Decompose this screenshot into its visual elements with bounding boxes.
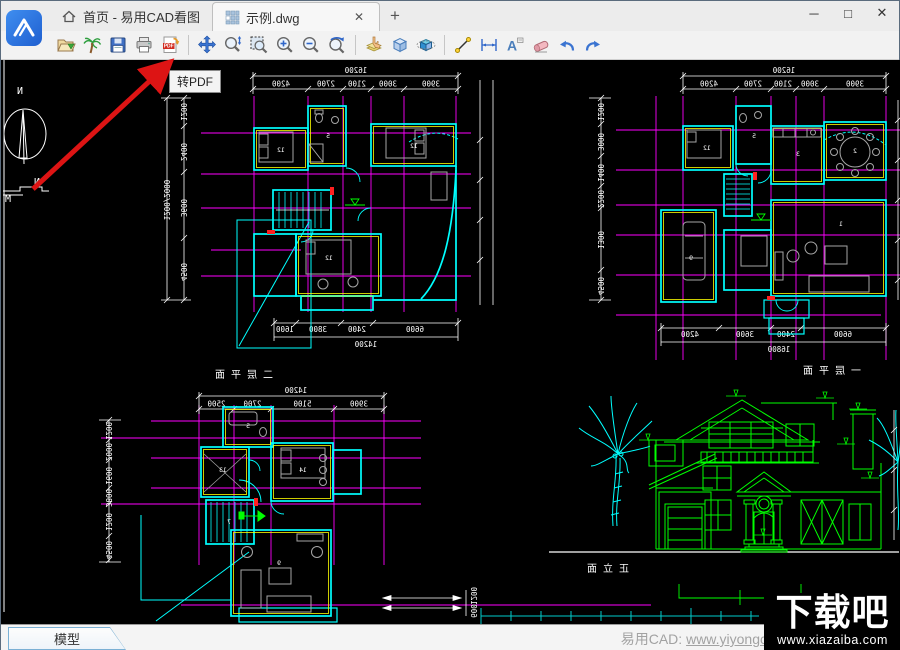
- svg-text:1200/2000: 1200/2000: [162, 179, 171, 220]
- svg-text:2400: 2400: [179, 142, 188, 161]
- cad-drawing: N N M: [1, 60, 900, 624]
- svg-text:2200: 2200: [596, 189, 605, 208]
- floor-plan-3: 14200 2500 2700 5100 3900 1200 2000 1600…: [99, 386, 651, 622]
- undo-icon: [557, 35, 577, 55]
- svg-text:4200: 4200: [699, 80, 718, 89]
- text-annotate-button[interactable]: A: [502, 33, 528, 58]
- tab-close-icon[interactable]: ✕: [351, 10, 367, 24]
- svg-text:1300: 1300: [596, 230, 605, 249]
- promo-prefix: 易用CAD:: [621, 631, 686, 647]
- print-button[interactable]: [131, 33, 157, 58]
- svg-text:4200: 4200: [271, 80, 290, 89]
- toolbar-separator: [188, 35, 189, 55]
- pdf-tooltip: 转PDF: [169, 70, 221, 93]
- pdf-icon-label: PDF: [164, 44, 174, 50]
- pan-icon: [197, 35, 217, 55]
- svg-text:3000: 3000: [378, 80, 397, 89]
- watermark-url: www.xiazaiba.com: [764, 633, 900, 647]
- svg-text:4500: 4500: [104, 540, 113, 559]
- svg-text:5: 5: [326, 132, 330, 140]
- print-icon: [134, 35, 154, 55]
- svg-text:14: 14: [299, 466, 307, 474]
- svg-text:2400: 2400: [347, 325, 366, 334]
- model-tab-label: 模型: [54, 629, 80, 648]
- svg-text:3: 3: [796, 150, 800, 158]
- dimension-button[interactable]: [476, 33, 502, 58]
- svg-text:14200: 14200: [354, 340, 377, 349]
- toolbar-separator: [444, 35, 445, 55]
- cad-canvas[interactable]: N N M: [1, 60, 900, 624]
- plan-1f-label: 一层平面: [797, 365, 861, 377]
- app-window: 首页 - 易用CAD看图 示例.dwg ✕ + ─ □ ✕: [0, 0, 900, 650]
- window-controls: ─ □ ✕: [805, 5, 891, 21]
- orbit-3d-button[interactable]: [413, 33, 439, 58]
- zoom-window-button[interactable]: [246, 33, 272, 58]
- layer-pick-button[interactable]: [361, 33, 387, 58]
- svg-text:16200: 16200: [344, 66, 367, 75]
- svg-text:5: 5: [752, 132, 756, 140]
- app-logo: [6, 10, 42, 46]
- svg-text:16800: 16800: [767, 345, 790, 354]
- svg-text:1600: 1600: [275, 325, 294, 334]
- zoom-dynamic-icon: [223, 35, 243, 55]
- front-elevation: 正立面: [481, 390, 900, 624]
- svg-text:13: 13: [219, 466, 227, 474]
- logo-icon: [11, 15, 37, 41]
- svg-text:1400: 1400: [596, 163, 605, 182]
- svg-text:4500: 4500: [179, 262, 188, 281]
- toolbar-separator: [355, 35, 356, 55]
- save-button[interactable]: [105, 33, 131, 58]
- north-compass: N: [4, 86, 46, 164]
- svg-text:3600: 3600: [179, 198, 188, 217]
- dimension-icon: [479, 35, 499, 55]
- floor-plan-2f: 16200 4200 2700 2100 3000 3900 1200 2400…: [161, 66, 493, 381]
- zoom-dynamic-button[interactable]: [220, 33, 246, 58]
- svg-text:3900: 3900: [349, 400, 368, 409]
- tab-bar: 首页 - 易用CAD看图 示例.dwg ✕ + ─ □ ✕: [1, 1, 899, 31]
- svg-text:2700: 2700: [743, 80, 762, 89]
- svg-text:14200: 14200: [284, 386, 307, 395]
- redo-button[interactable]: [580, 33, 606, 58]
- svg-text:3900: 3900: [845, 80, 864, 89]
- zoom-in-button[interactable]: [272, 33, 298, 58]
- drawing-grid-icon: [225, 10, 240, 25]
- palm-tree-icon: [82, 35, 102, 55]
- svg-text:4200: 4200: [680, 330, 699, 339]
- text-annotate-icon: A: [505, 35, 525, 55]
- tab-doc-label: 示例.dwg: [246, 8, 299, 27]
- promo-link[interactable]: www.yiyongc: [686, 631, 767, 647]
- elevation-label: 正立面: [581, 562, 629, 575]
- toolbar: PDF: [1, 31, 899, 60]
- svg-text:1200: 1200: [179, 102, 188, 121]
- svg-text:2100: 2100: [347, 80, 366, 89]
- eraser-button[interactable]: [528, 33, 554, 58]
- svg-text:1200: 1200: [469, 586, 478, 605]
- svg-text:6600: 6600: [405, 325, 424, 334]
- svg-text:3800: 3800: [104, 488, 113, 507]
- watermark: 下载吧 www.xiazaiba.com: [764, 593, 900, 650]
- zoom-previous-icon: [327, 35, 347, 55]
- new-tab-button[interactable]: +: [380, 1, 410, 31]
- save-icon: [108, 35, 128, 55]
- layer-pick-icon: [364, 35, 384, 55]
- pdf-export-icon: PDF: [160, 35, 180, 55]
- svg-text:12: 12: [325, 254, 333, 262]
- svg-text:16200: 16200: [772, 66, 795, 75]
- svg-text:1600: 1600: [104, 466, 113, 485]
- tab-home-label: 首页 - 易用CAD看图: [83, 7, 200, 26]
- svg-text:6600: 6600: [833, 330, 852, 339]
- svg-text:9: 9: [277, 559, 281, 567]
- svg-text:3000: 3000: [800, 80, 819, 89]
- pdf-export-button[interactable]: PDF: [157, 33, 183, 58]
- eraser-icon: [531, 35, 551, 55]
- svg-text:5: 5: [246, 422, 250, 430]
- svg-text:2000: 2000: [104, 442, 113, 461]
- scale-mark: N M: [3, 177, 49, 205]
- svg-text:2: 2: [853, 147, 857, 155]
- home-icon: [61, 8, 77, 24]
- tab-doc-active[interactable]: 示例.dwg ✕: [212, 2, 380, 31]
- svg-text:M: M: [5, 194, 11, 205]
- zoom-previous-button[interactable]: [324, 33, 350, 58]
- zoom-in-icon: [275, 35, 295, 55]
- tab-home[interactable]: 首页 - 易用CAD看图: [49, 1, 212, 31]
- close-button[interactable]: ✕: [873, 5, 891, 21]
- svg-text:3600: 3600: [735, 330, 754, 339]
- cube-3d-icon: [390, 35, 410, 55]
- svg-text:1200: 1200: [596, 102, 605, 121]
- svg-text:12: 12: [410, 142, 418, 150]
- svg-text:7: 7: [227, 518, 231, 526]
- svg-text:1: 1: [839, 220, 843, 228]
- watermark-title: 下载吧: [764, 593, 900, 633]
- maximize-button[interactable]: □: [839, 6, 857, 21]
- measure-line-button[interactable]: [450, 33, 476, 58]
- svg-text:600: 600: [469, 604, 478, 618]
- svg-text:1200: 1200: [104, 421, 113, 440]
- svg-text:4500: 4500: [596, 276, 605, 295]
- svg-text:1200: 1200: [104, 512, 113, 531]
- zoom-window-icon: [249, 35, 269, 55]
- svg-text:N: N: [34, 177, 40, 188]
- zoom-out-icon: [301, 35, 321, 55]
- north-label: N: [17, 86, 23, 97]
- redo-icon: [583, 35, 603, 55]
- svg-text:3900: 3900: [421, 80, 440, 89]
- floor-plan-1f: 16200 4200 2700 2100 3000 3900 1200 3000…: [589, 66, 900, 377]
- open-file-icon: [56, 35, 76, 55]
- undo-button[interactable]: [554, 33, 580, 58]
- svg-text:2100: 2100: [773, 80, 792, 89]
- minimize-button[interactable]: ─: [805, 6, 823, 21]
- svg-text:12: 12: [277, 146, 285, 154]
- svg-text:A: A: [507, 38, 517, 54]
- pan-button[interactable]: [194, 33, 220, 58]
- svg-text:12: 12: [703, 144, 711, 152]
- model-space-tab[interactable]: 模型: [8, 627, 126, 650]
- svg-text:2700: 2700: [316, 80, 335, 89]
- svg-text:9: 9: [689, 254, 693, 262]
- open-file-button[interactable]: [53, 33, 79, 58]
- palm-tree-button[interactable]: [79, 33, 105, 58]
- zoom-out-button[interactable]: [298, 33, 324, 58]
- svg-text:3000: 3000: [596, 132, 605, 151]
- svg-text:5100: 5100: [293, 400, 312, 409]
- promo-text: 易用CAD: www.yiyongc: [621, 629, 767, 649]
- measure-line-icon: [453, 35, 473, 55]
- orbit-3d-icon: [416, 35, 436, 55]
- plan-2f-label: 二层平面: [209, 369, 273, 381]
- cube-3d-button[interactable]: [387, 33, 413, 58]
